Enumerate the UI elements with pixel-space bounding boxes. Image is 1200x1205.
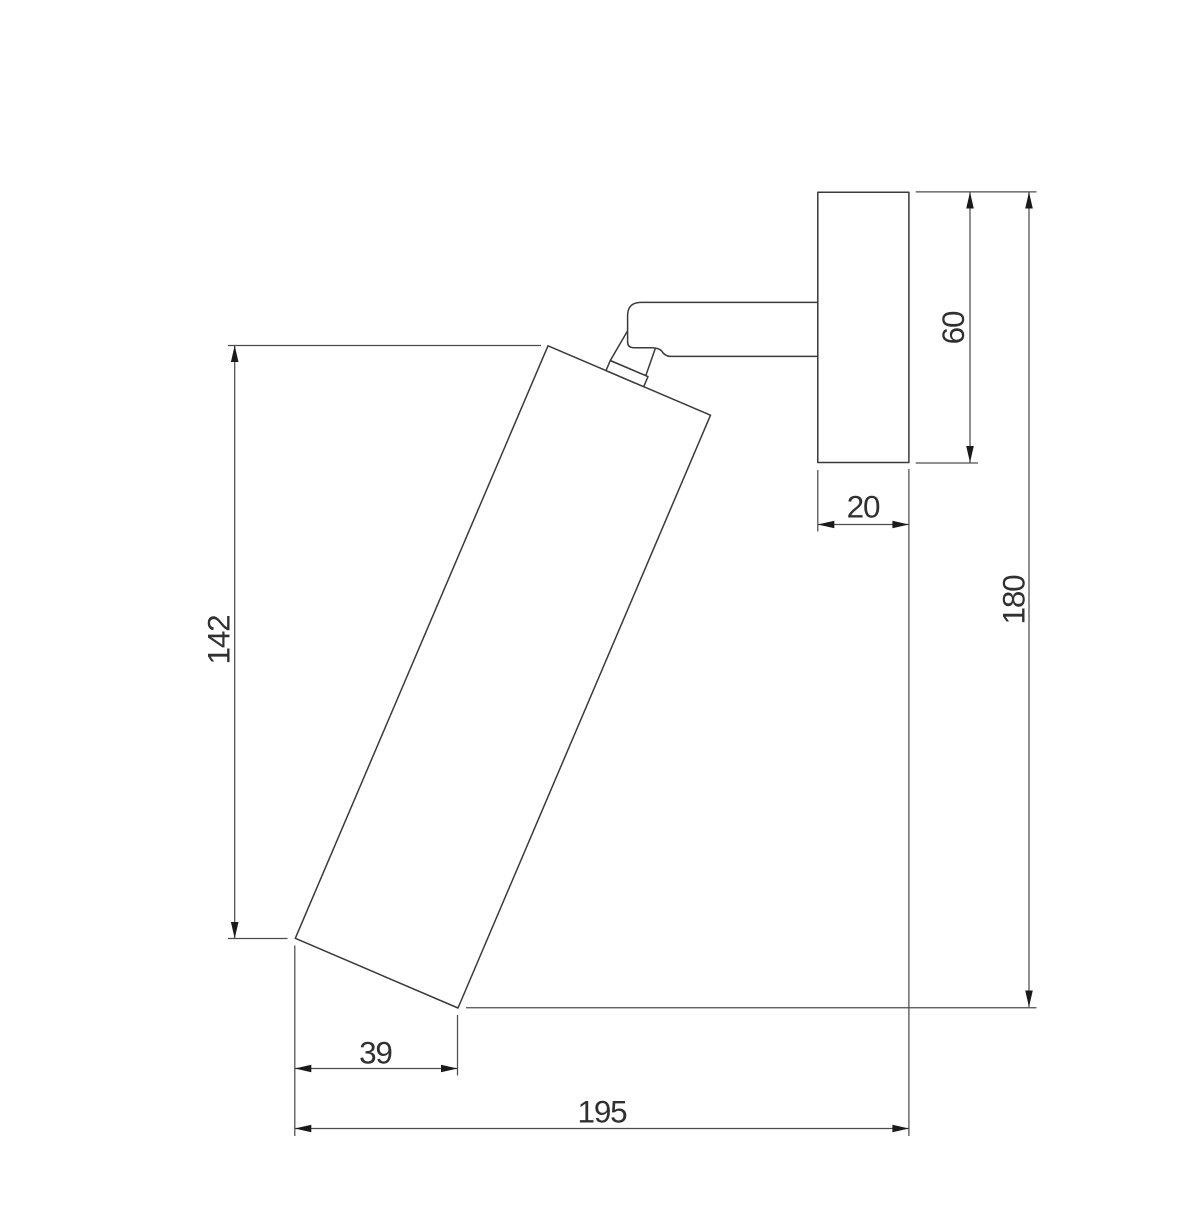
svg-text:195: 195 — [578, 1094, 628, 1130]
svg-text:60: 60 — [935, 311, 971, 344]
svg-text:39: 39 — [359, 1034, 392, 1070]
svg-text:142: 142 — [201, 616, 237, 665]
svg-text:20: 20 — [847, 489, 880, 525]
svg-text:180: 180 — [995, 575, 1031, 625]
